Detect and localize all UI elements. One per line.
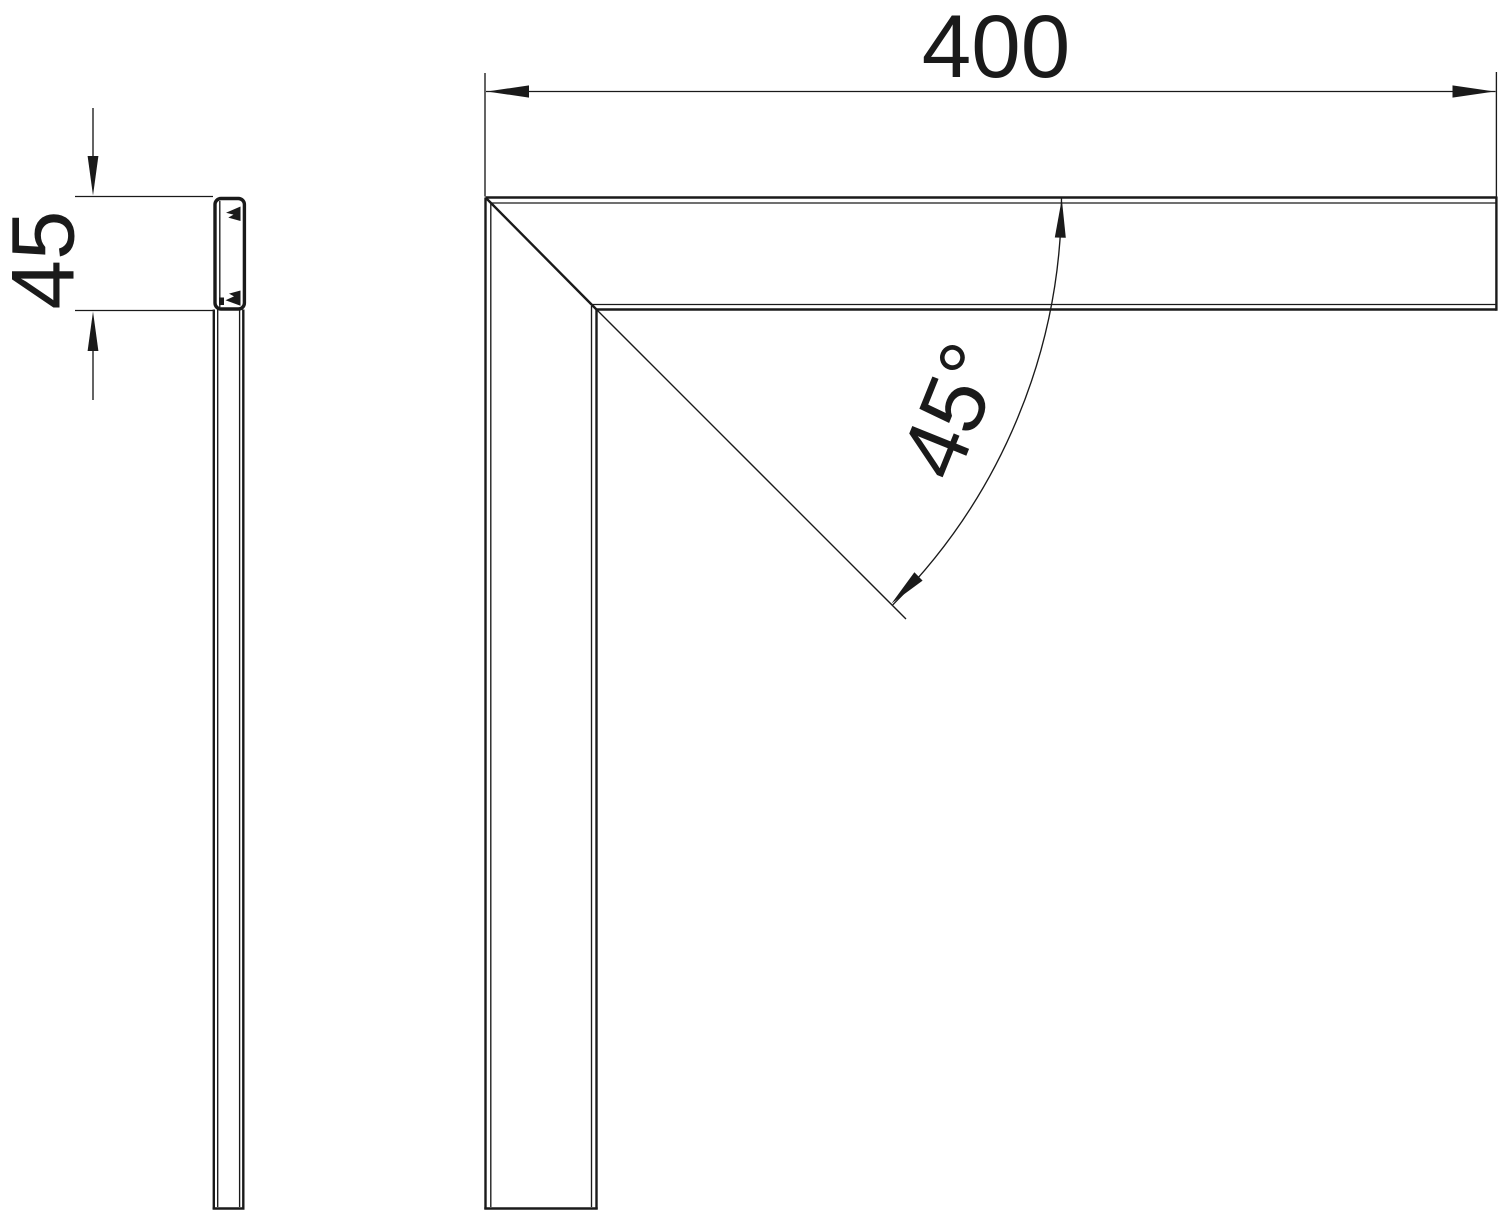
height-dim-arrow-up-icon: [88, 312, 99, 352]
plan-view: 400 45°: [484, 0, 1496, 1209]
technical-drawing: 45 400: [0, 0, 1500, 1214]
angle-arc-arrow-bottom-icon: [892, 572, 923, 603]
height-dim-arrow-down-icon: [88, 156, 99, 196]
section-clip-foot: [219, 298, 224, 306]
side-view: 45: [0, 108, 245, 1209]
width-dimension-label: 400: [922, 0, 1071, 96]
angle-ray-line: [597, 310, 907, 620]
height-dimension: 45: [0, 108, 213, 400]
section-clip-top: [226, 207, 241, 222]
width-dim-arrow-left-icon: [487, 85, 529, 97]
section-clip-bottom: [226, 291, 241, 306]
width-dimension: 400: [485, 0, 1496, 197]
angle-dimension: 45°: [597, 198, 1066, 620]
miter-joint-line: [486, 198, 597, 310]
height-dimension-label: 45: [0, 211, 93, 310]
angle-arc-arrow-top-icon: [1055, 199, 1066, 238]
width-dim-arrow-right-icon: [1453, 85, 1495, 97]
angle-dimension-label: 45°: [880, 329, 1023, 491]
profile-cross-section: [215, 199, 244, 310]
profile-tail: [213, 310, 245, 1210]
